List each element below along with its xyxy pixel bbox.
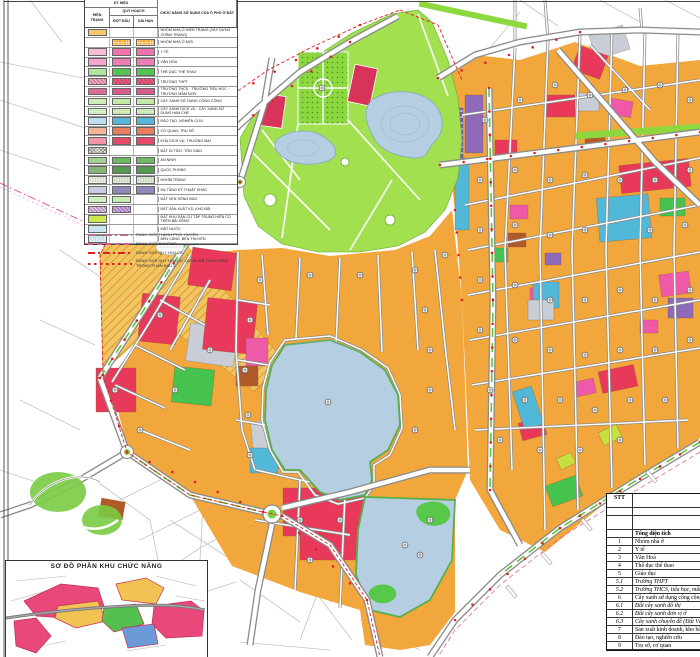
legend-row: NHÓM NHÀ Ở HIỆN TRẠNG (XÂY DỰNG CHỈNH TR…: [85, 28, 237, 38]
legend-label: ĐẤT KHU DÂN CƯ TẬP TRUNG HIỆN CÓ TRÊN BÃ…: [158, 215, 237, 224]
legend-swatch: [112, 48, 131, 56]
legend-row: QUỐC PHÒNG: [85, 166, 237, 176]
boundary-line-label: RANH GIỚI QUY HOẠCH, DỰ ÁN ĐÃ THỰC HIỆN …: [136, 259, 238, 268]
table-row: 6.1Đất cây xanh đô thị: [607, 602, 700, 610]
legend-label: ĐẤT SẢN XUẤT KD, KHO BÃI: [158, 207, 237, 212]
legend-header: KÝ HIỆU HIỆN TRẠNG QUY HOẠCH ĐỢT ĐẦU DÀI…: [85, 0, 237, 28]
legend-label: NHÓM NHÀ Ở HIỆN TRẠNG (XÂY DỰNG CHỈNH TR…: [158, 28, 237, 37]
legend-row: HẠ TẦNG KỸ THUẬT KHÁC: [85, 185, 237, 195]
table-row: 4Thể dục thể thao: [607, 562, 700, 570]
legend-label: NGHĨA TRANG: [158, 177, 237, 182]
legend-row: ĐẤT KHU DÂN CƯ TẬP TRUNG HIỆN CÓ TRÊN BÃ…: [85, 215, 237, 225]
legend-label: ĐÀO TẠO, NGHIÊN CỨU: [158, 119, 237, 124]
legend-row: ĐẤT VEN SÔNG ĐÀO: [85, 195, 237, 205]
legend-swatch: [88, 186, 107, 194]
statistics-table: STT Tên phường Dân số (người) Chức năng …: [606, 493, 700, 651]
legend-label: TRƯỜNG THCS · TRƯỜNG TIỂU HỌC · TRƯỜNG M…: [158, 87, 237, 96]
legend-swatch: [137, 197, 154, 203]
legend-label: NHÓM NHÀ Ở MỚI: [158, 40, 237, 45]
legend-label: AN NINH: [158, 158, 237, 163]
table-row: 3Văn Hoá: [607, 554, 700, 562]
legend-row: CÂY XANH DỊCH VỤ · CÂY XANH SỬ DỤNG HẠN …: [85, 107, 237, 117]
table-row: 1Nhóm nhà ở: [607, 538, 700, 546]
legend-row: ĐẤT SẢN XUẤT KD, KHO BÃI: [85, 205, 237, 215]
legend-swatch: [88, 117, 107, 125]
table-row: 6Cây xanh sử dụng công cộng: [607, 594, 700, 602]
legend-swatch: [112, 186, 131, 194]
legend-swatch: [136, 48, 155, 56]
boundary-legend: RANH GIỚI THÀNH PHỐ, HUYỆNRANH GIỚI PHƯỜ…: [88, 233, 238, 273]
legend-swatch: [88, 127, 107, 135]
legend-swatch: [136, 68, 155, 76]
legend-swatch: [137, 207, 154, 213]
boundary-line-sample: [88, 252, 132, 254]
legend-swatch: [112, 166, 131, 174]
table-row-danso: Dân số (người): [607, 508, 700, 516]
legend-swatch: [88, 98, 107, 106]
table-row: 7Sản xuất kinh doanh, kho bãi: [607, 626, 700, 634]
boundary-line-sample: [88, 263, 132, 265]
table-row: 5.1Trường THPT: [607, 578, 700, 586]
table-row: 9Trụ sở, cơ quan: [607, 642, 700, 650]
legend-swatch: [137, 148, 154, 154]
legend-swatch: [88, 157, 107, 165]
legend-swatch: [136, 166, 155, 174]
legend-row: NHÓM NHÀ Ở MỚI: [85, 38, 237, 48]
legend-label: HẠ TẦNG KỸ THUẬT KHÁC: [158, 187, 237, 192]
legend-swatch: [88, 147, 107, 155]
legend-label: CƠ QUAN, TRỤ SỞ: [158, 129, 237, 134]
boundary-legend-item: RANH GIỚI QUY HOẠCH, DỰ ÁN ĐÃ THỰC HIỆN …: [88, 259, 238, 268]
table-row: Tổng diện tích: [607, 530, 700, 538]
boundary-line-label: RANH GIỚI QUY HOẠCH: [136, 251, 182, 256]
legend-swatch: [137, 216, 154, 222]
legend-swatch: [136, 117, 155, 125]
legend-swatch: [136, 157, 155, 165]
legend-swatch: [112, 78, 131, 86]
legend-swatch: [88, 225, 107, 233]
legend-swatch: [88, 29, 107, 37]
legend-swatch: [112, 176, 131, 184]
legend-swatch: [112, 68, 131, 76]
legend-swatch: [112, 108, 131, 116]
legend-swatch: [88, 206, 107, 214]
legend-row: THỂ DỤC THỂ THAO: [85, 67, 237, 77]
legend-swatch: [136, 186, 155, 194]
col-stt: STT: [607, 494, 633, 507]
legend-swatch: [112, 137, 131, 145]
legend-label: VĂN HÓA: [158, 60, 237, 65]
legend-label: QUỐC PHÒNG: [158, 168, 237, 173]
legend-label: CÂY XANH SỬ DỤNG CÔNG CỘNG: [158, 99, 237, 104]
legend-row: TRƯỜNG THCS · TRƯỜNG TIỂU HỌC · TRƯỜNG M…: [85, 87, 237, 97]
legend-swatch: [89, 40, 106, 46]
legend-label: ĐẤT VEN SÔNG ĐÀO: [158, 197, 237, 202]
legend-swatch: [112, 58, 131, 66]
col-ten-phuong: Tên phường: [633, 494, 700, 507]
legend-swatch: [112, 88, 131, 96]
legend-row: Y TẾ: [85, 48, 237, 58]
legend-swatch: [88, 88, 107, 96]
legend-swatch: [137, 30, 154, 36]
legend-swatch: [112, 127, 131, 135]
inset-overview: SƠ ĐỒ PHÂN KHU CHỨC NĂNG: [5, 560, 208, 657]
legend-label: ĐẤT DI TÍCH, TÔN GIÁO: [158, 148, 237, 153]
legend-label: CÂY XANH DỊCH VỤ · CÂY XANH SỬ DỤNG HẠN …: [158, 107, 237, 116]
legend-swatch: [88, 176, 107, 184]
legend-swatch: [112, 157, 131, 165]
legend-swatch: [88, 78, 107, 86]
legend-swatch: [88, 48, 107, 56]
legend-row: KHU DỊCH VỤ, THƯƠNG MẠI: [85, 136, 237, 146]
legend-swatch: [136, 98, 155, 106]
boundary-legend-item: RANH GIỚI PHƯỜNG: [88, 242, 238, 247]
legend-swatch: [88, 196, 107, 204]
legend-swatch: [88, 58, 107, 66]
legend-swatch: [136, 58, 155, 66]
legend-panel: KÝ HIỆU HIỆN TRẠNG QUY HOẠCH ĐỢT ĐẦU DÀI…: [84, 0, 238, 245]
legend-row: VĂN HÓA: [85, 58, 237, 68]
legend-swatch: [136, 39, 155, 47]
legend-swatch: [112, 206, 131, 214]
legend-swatch: [112, 117, 131, 125]
legend-label: Y TẾ: [158, 50, 237, 55]
table-row: 8Đào tạo, nghiên cứu: [607, 634, 700, 642]
legend-row: NGHĨA TRANG: [85, 176, 237, 186]
legend-label: MẶT NƯỚC: [158, 227, 237, 232]
legend-swatch: [113, 216, 130, 222]
table-header: STT Tên phường: [607, 494, 700, 508]
table-row-chucnang: Chức năng sử dụng ô phố: [607, 516, 700, 530]
legend-swatch: [112, 39, 131, 47]
legend-swatch: [136, 78, 155, 86]
legend-title: KÝ HIỆU: [85, 0, 158, 8]
boundary-line-label: RANH GIỚI THÀNH PHỐ, HUYỆN: [136, 233, 198, 238]
legend-label: KHU DỊCH VỤ, THƯƠNG MẠI: [158, 138, 237, 143]
table-row: 5Giáo dục: [607, 570, 700, 578]
boundary-legend-item: RANH GIỚI THÀNH PHỐ, HUYỆN: [88, 233, 238, 238]
legend-swatch: [88, 215, 107, 223]
boundary-line-sample: [88, 243, 132, 245]
legend-swatch: [136, 127, 155, 135]
legend-row: CƠ QUAN, TRỤ SỞ: [85, 127, 237, 137]
legend-swatch: [88, 108, 107, 116]
table-row: 2Y tế: [607, 546, 700, 554]
legend-swatch: [88, 68, 107, 76]
map-sheet: KÝ HIỆU HIỆN TRẠNG QUY HOẠCH ĐỢT ĐẦU DÀI…: [0, 0, 700, 657]
legend-swatch: [112, 196, 131, 204]
table-row: 6.2Đất cây xanh đơn vị ở: [607, 610, 700, 618]
boundary-line-label: RANH GIỚI PHƯỜNG: [136, 242, 177, 247]
legend-row: ĐẤT DI TÍCH, TÔN GIÁO: [85, 146, 237, 156]
boundary-legend-item: RANH GIỚI QUY HOẠCH: [88, 251, 238, 256]
legend-swatch: [112, 98, 131, 106]
legend-swatch: [113, 148, 130, 154]
legend-swatch: [113, 226, 130, 232]
legend-swatch: [113, 30, 130, 36]
boundary-line-sample: [88, 234, 132, 236]
legend-swatch: [136, 176, 155, 184]
inset-map: [6, 571, 205, 654]
inset-title: SƠ ĐỒ PHÂN KHU CHỨC NĂNG: [6, 563, 207, 570]
legend-swatch: [136, 88, 155, 96]
legend-label: TRƯỜNG THPT: [158, 79, 237, 84]
table-row: 6.3Cây xanh chuyên đề (Đất Văn hóa): [607, 618, 700, 626]
legend-swatch: [136, 137, 155, 145]
legend-swatch: [136, 108, 155, 116]
legend-row: TRƯỜNG THPT: [85, 77, 237, 87]
table-row: 5.2Trường THCS, tiểu học, mầm non: [607, 586, 700, 594]
legend-row: ĐÀO TẠO, NGHIÊN CỨU: [85, 117, 237, 127]
legend-row: CÂY XANH SỬ DỤNG CÔNG CỘNG: [85, 97, 237, 107]
legend-swatch: [88, 137, 107, 145]
legend-label: THỂ DỤC THỂ THAO: [158, 69, 237, 74]
legend-swatch: [88, 166, 107, 174]
legend-row: AN NINH: [85, 156, 237, 166]
